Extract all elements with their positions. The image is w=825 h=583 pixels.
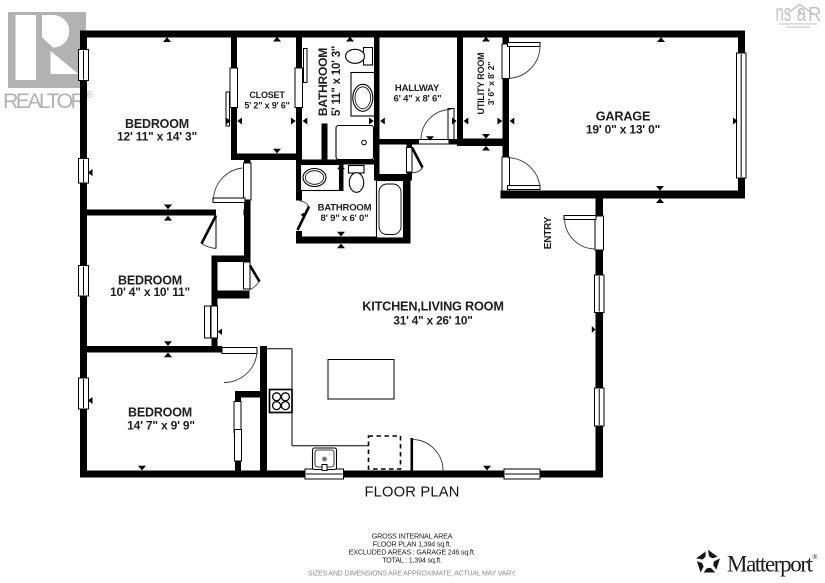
svg-text:3' 6" x 8' 2": 3' 6" x 8' 2" bbox=[486, 62, 496, 106]
svg-text:14' 7" x 9' 9": 14' 7" x 9' 9" bbox=[127, 419, 195, 433]
svg-text:HALLWAY: HALLWAY bbox=[395, 83, 440, 94]
svg-text:31' 4" x 26' 10": 31' 4" x 26' 10" bbox=[393, 314, 472, 328]
svg-text:SIZES AND DIMENSIONS ARE APPRO: SIZES AND DIMENSIONS ARE APPROXIMATE, AC… bbox=[308, 571, 517, 578]
svg-text:BATHROOM: BATHROOM bbox=[318, 203, 372, 214]
svg-text:UTILITY ROOM: UTILITY ROOM bbox=[476, 53, 486, 115]
svg-text:®: ® bbox=[813, 553, 818, 561]
svg-text:CLOSET: CLOSET bbox=[249, 90, 285, 100]
svg-text:ENTRY: ENTRY bbox=[543, 216, 554, 249]
svg-text:Matterport: Matterport bbox=[727, 552, 814, 577]
svg-text:8' 9" x 6' 0": 8' 9" x 6' 0" bbox=[321, 213, 369, 224]
svg-text:ns: ns bbox=[776, 1, 792, 27]
svg-text:BEDROOM: BEDROOM bbox=[128, 406, 192, 420]
svg-text:FLOOR PLAN: FLOOR PLAN bbox=[364, 485, 459, 501]
svg-text:10' 4" x 10' 11": 10' 4" x 10' 11" bbox=[110, 285, 190, 299]
svg-text:R: R bbox=[808, 3, 821, 26]
svg-text:19' 0" x 13' 0": 19' 0" x 13' 0" bbox=[586, 123, 660, 137]
svg-text:12' 11" x 14' 3": 12' 11" x 14' 3" bbox=[117, 130, 197, 144]
svg-text:6' 4" x 8' 6": 6' 4" x 8' 6" bbox=[394, 94, 442, 105]
svg-text:REALTOR: REALTOR bbox=[3, 89, 86, 113]
svg-text:5' 11" x 10' 3": 5' 11" x 10' 3" bbox=[331, 46, 343, 116]
svg-text:GARAGE: GARAGE bbox=[596, 110, 651, 124]
svg-text:TOTAL : 1,394 sq.ft.: TOTAL : 1,394 sq.ft. bbox=[382, 556, 442, 565]
svg-text:BATHROOM: BATHROOM bbox=[316, 48, 330, 116]
svg-text:5' 2" x 9' 6": 5' 2" x 9' 6" bbox=[244, 101, 289, 111]
svg-text:KITCHEN,LIVING ROOM: KITCHEN,LIVING ROOM bbox=[362, 300, 503, 314]
